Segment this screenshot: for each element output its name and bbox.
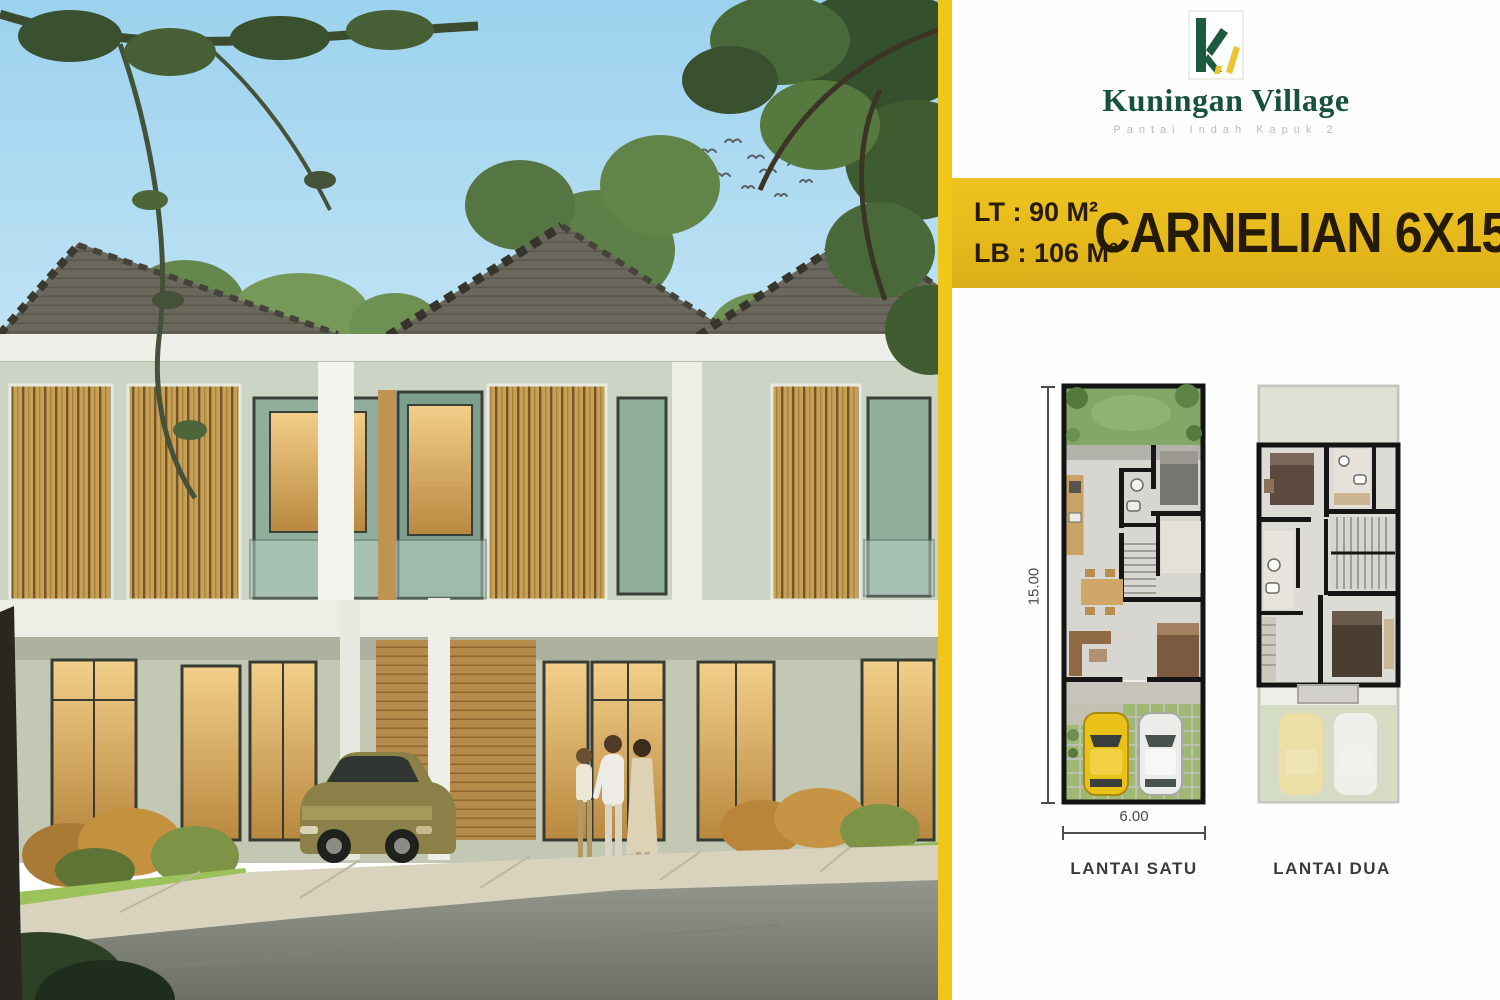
- facade-pillar: [672, 362, 702, 602]
- floor-plan-lantai-satu: [1061, 383, 1206, 805]
- info-panel: Kuningan Village Pantai Indah Kapuk 2 LT…: [952, 0, 1500, 1000]
- bedroom-top-right: [1160, 451, 1198, 505]
- floor-plan-lantai-dua: [1256, 383, 1401, 805]
- vertical-divider: [938, 0, 952, 1000]
- balcony: [1298, 685, 1358, 703]
- roof-fascia: [0, 334, 938, 362]
- house-render-image: [0, 0, 938, 1000]
- brand-name: Kuningan Village: [952, 82, 1500, 119]
- faded-garden: [1261, 388, 1396, 445]
- floor2-label: LANTAI DUA: [1242, 859, 1422, 879]
- kuningan-village-logo-icon: [1188, 10, 1244, 80]
- width-dimension-line: [1062, 832, 1206, 834]
- mid-right-room: [1161, 521, 1201, 573]
- stairs: [1124, 538, 1156, 596]
- bathroom-2-midleft: [1264, 531, 1294, 609]
- kitchen-counter: [1067, 475, 1084, 555]
- family-figures: [576, 735, 658, 872]
- upper-floor-facade: [0, 362, 938, 602]
- white-car-topview: [1139, 713, 1182, 795]
- canopy-band: [0, 600, 938, 638]
- front-porch: [1067, 682, 1201, 704]
- facade-pillar: [318, 362, 354, 602]
- back-garden: [1066, 384, 1202, 446]
- faded-carport-2: [1261, 705, 1396, 800]
- carport: [1067, 704, 1201, 800]
- brand-tagline: Pantai Indah Kapuk 2: [952, 124, 1500, 136]
- wood-pillar: [378, 390, 396, 600]
- depth-dimension-line: [1047, 386, 1049, 804]
- width-dimension-label: 6.00: [1062, 808, 1206, 825]
- bedroom-2-topleft: [1264, 453, 1314, 505]
- bathroom-2-topright: [1334, 449, 1370, 507]
- master-bedroom: [1332, 611, 1394, 677]
- stairs-2: [1331, 517, 1395, 589]
- house-scene: [0, 0, 938, 1000]
- unit-title: CARNELIAN 6X15: [1102, 178, 1500, 288]
- brochure-page: Kuningan Village Pantai Indah Kapuk 2 LT…: [0, 0, 1500, 1000]
- wardrobe-strip: [1262, 617, 1276, 681]
- bedroom-bottom-right: [1157, 623, 1199, 677]
- depth-dimension-label: 15.00: [1026, 557, 1043, 617]
- floor1-label: LANTAI SATU: [1044, 859, 1224, 879]
- yellow-car-topview: [1084, 713, 1128, 795]
- spec-banner: LT : 90 M² LB : 106 M² CARNELIAN 6X15: [952, 178, 1500, 288]
